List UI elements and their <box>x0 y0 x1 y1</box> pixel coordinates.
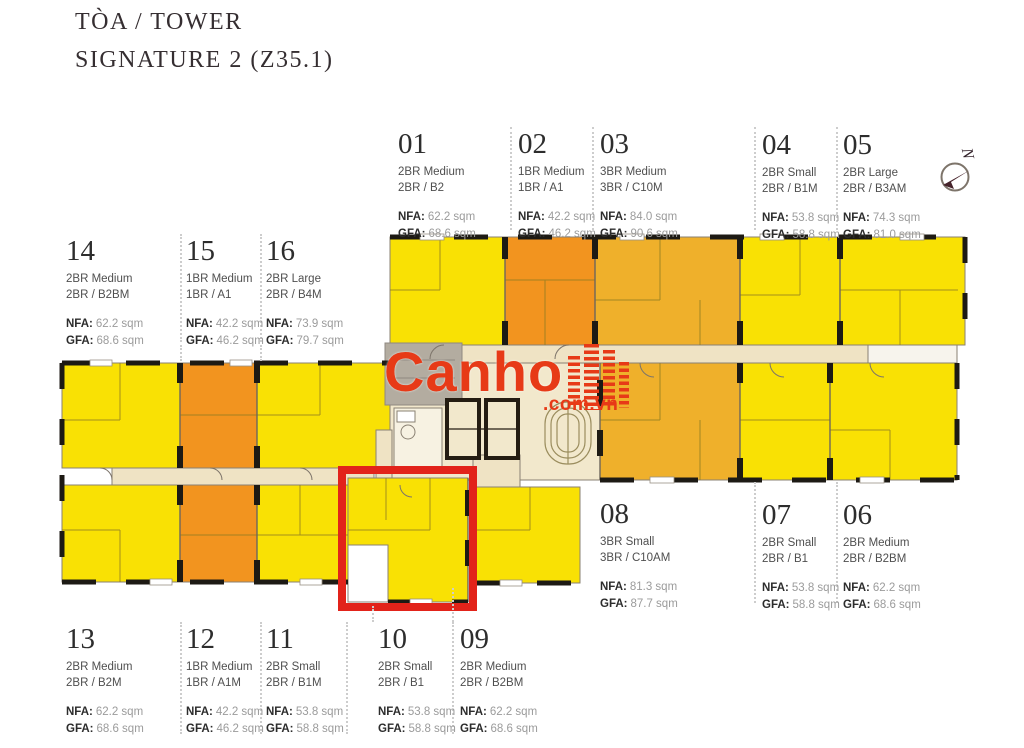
unit-type: 2BR Medium <box>66 271 178 287</box>
unit-shape-06 <box>830 363 957 480</box>
nfa-value: 53.8 sqm <box>792 212 839 224</box>
unit-label-08: 08 3BR Small 3BR / C10AM NFA:81.3 sqm GF… <box>600 500 712 614</box>
unit-number: 11 <box>266 625 378 654</box>
gfa-value: 79.7 sqm <box>296 335 343 347</box>
unit-type: 2BR Large <box>843 165 955 181</box>
unit-shape-07 <box>740 363 830 480</box>
unit-shape-12 <box>180 485 257 582</box>
gfa-label: GFA: <box>762 229 789 241</box>
gfa-label: GFA: <box>186 723 213 735</box>
label-leader <box>754 482 756 495</box>
unit-code: 2BR / B2BM <box>66 287 178 303</box>
nfa-label: NFA: <box>398 211 425 223</box>
gfa-value: 58.8 sqm <box>296 723 343 735</box>
unit-label-01: 01 2BR Medium 2BR / B2 NFA:62.2 sqm GFA:… <box>398 130 510 244</box>
unit-number: 13 <box>66 625 178 654</box>
gfa-value: 90.6 sqm <box>630 228 677 240</box>
nfa-value: 62.2 sqm <box>428 211 475 223</box>
unit-type: 2BR Medium <box>460 659 572 675</box>
canho-building-icon <box>603 350 615 408</box>
unit-type: 2BR Small <box>266 659 378 675</box>
nfa-label: NFA: <box>843 582 870 594</box>
nfa-value: 42.2 sqm <box>216 318 263 330</box>
nfa-value: 73.9 sqm <box>296 318 343 330</box>
nfa-value: 81.3 sqm <box>630 581 677 593</box>
unit-code: 2BR / B4M <box>266 287 378 303</box>
gfa-value: 68.6 sqm <box>490 723 537 735</box>
gfa-value: 87.7 sqm <box>630 598 677 610</box>
unit-label-14: 14 2BR Medium 2BR / B2BM NFA:62.2 sqm GF… <box>66 237 178 351</box>
gfa-label: GFA: <box>460 723 487 735</box>
unit-number: 09 <box>460 625 572 654</box>
unit-shape-05 <box>840 237 965 345</box>
unit-number: 06 <box>843 501 955 530</box>
nfa-label: NFA: <box>762 582 789 594</box>
unit-shape-01 <box>390 237 505 345</box>
unit-type: 2BR Medium <box>398 164 510 180</box>
gfa-value: 58.8 sqm <box>792 229 839 241</box>
label-leader <box>836 482 838 495</box>
gfa-label: GFA: <box>600 598 627 610</box>
nfa-label: NFA: <box>600 581 627 593</box>
unit-label-09: 09 2BR Medium 2BR / B2BM NFA:62.2 sqm GF… <box>460 625 572 739</box>
unit-label-05: 05 2BR Large 2BR / B3AM NFA:74.3 sqm GFA… <box>843 131 955 245</box>
nfa-value: 62.2 sqm <box>490 706 537 718</box>
unit-number: 08 <box>600 500 712 529</box>
gfa-value: 46.2 sqm <box>216 335 263 347</box>
unit-shape-13 <box>62 485 180 582</box>
gfa-value: 68.6 sqm <box>428 228 475 240</box>
unit-type: 2BR Medium <box>66 659 178 675</box>
nfa-value: 74.3 sqm <box>873 212 920 224</box>
unit-code: 3BR / C10AM <box>600 550 712 566</box>
unit-code: 2BR / B2 <box>398 180 510 196</box>
nfa-value: 42.2 sqm <box>216 706 263 718</box>
nfa-label: NFA: <box>266 318 293 330</box>
unit-code: 2BR / B3AM <box>843 181 955 197</box>
gfa-label: GFA: <box>378 723 405 735</box>
unit-label-11: 11 2BR Small 2BR / B1M NFA:53.8 sqm GFA:… <box>266 625 378 739</box>
gfa-label: GFA: <box>266 335 293 347</box>
gfa-value: 46.2 sqm <box>548 228 595 240</box>
unit-shape-02 <box>505 237 595 345</box>
unit-shape-11 <box>257 485 348 582</box>
gfa-label: GFA: <box>762 599 789 611</box>
canho-logo-text: Canho <box>384 344 563 400</box>
label-separator <box>754 497 756 603</box>
label-leader <box>452 588 454 622</box>
nfa-label: NFA: <box>266 706 293 718</box>
label-leader <box>180 345 182 361</box>
nfa-label: NFA: <box>378 706 405 718</box>
unit-shape-14 <box>62 363 180 468</box>
canho-building-icon <box>619 362 629 408</box>
label-separator <box>180 234 182 342</box>
label-separator <box>754 127 756 230</box>
corridor-end <box>868 345 957 363</box>
nfa-label: NFA: <box>186 318 213 330</box>
unit-type: 2BR Medium <box>843 535 955 551</box>
unit-10-notch <box>348 545 388 602</box>
unit-type: 3BR Small <box>600 534 712 550</box>
unit-number: 14 <box>66 237 178 266</box>
nfa-label: NFA: <box>600 211 627 223</box>
gfa-value: 46.2 sqm <box>216 723 263 735</box>
nfa-label: NFA: <box>762 212 789 224</box>
unit-number: 03 <box>600 130 712 159</box>
unit-label-13: 13 2BR Medium 2BR / B2M NFA:62.2 sqm GFA… <box>66 625 178 739</box>
unit-label-03: 03 3BR Medium 3BR / C10M NFA:84.0 sqm GF… <box>600 130 712 244</box>
floor-plan-page: TÒA / TOWER SIGNATURE 2 (Z35.1) <box>0 0 1024 748</box>
unit-code: 3BR / C10M <box>600 180 712 196</box>
nfa-label: NFA: <box>843 212 870 224</box>
unit-number: 16 <box>266 237 378 266</box>
nfa-label: NFA: <box>66 318 93 330</box>
nfa-value: 62.2 sqm <box>873 582 920 594</box>
gfa-value: 68.6 sqm <box>96 723 143 735</box>
unit-shape-04 <box>740 237 840 345</box>
canho-building-icon <box>568 356 580 408</box>
gfa-value: 68.6 sqm <box>96 335 143 347</box>
gfa-value: 81.0 sqm <box>873 229 920 241</box>
gfa-label: GFA: <box>518 228 545 240</box>
nfa-value: 53.8 sqm <box>296 706 343 718</box>
nfa-value: 84.0 sqm <box>630 211 677 223</box>
gfa-label: GFA: <box>843 599 870 611</box>
canho-building-icon <box>584 344 599 410</box>
gfa-label: GFA: <box>600 228 627 240</box>
nfa-value: 62.2 sqm <box>96 318 143 330</box>
corridor-connector <box>376 430 392 485</box>
unit-code: 2BR / B1M <box>266 675 378 691</box>
unit-type: 2BR Large <box>266 271 378 287</box>
unit-number: 01 <box>398 130 510 159</box>
unit-number: 05 <box>843 131 955 160</box>
nfa-value: 53.8 sqm <box>408 706 455 718</box>
nfa-label: NFA: <box>186 706 213 718</box>
corridor-left <box>112 468 374 485</box>
unit-code: 2BR / B2BM <box>843 551 955 567</box>
unit-type: 3BR Medium <box>600 164 712 180</box>
unit-shape-09 <box>473 487 580 583</box>
nfa-label: NFA: <box>66 706 93 718</box>
gfa-value: 58.8 sqm <box>408 723 455 735</box>
nfa-value: 62.2 sqm <box>96 706 143 718</box>
gfa-label: GFA: <box>66 723 93 735</box>
gfa-label: GFA: <box>66 335 93 347</box>
nfa-label: NFA: <box>460 706 487 718</box>
canho-watermark: Canho .com.vn <box>380 342 640 422</box>
gfa-label: GFA: <box>398 228 425 240</box>
gfa-value: 68.6 sqm <box>873 599 920 611</box>
gfa-label: GFA: <box>843 229 870 241</box>
unit-shape-03 <box>595 237 740 345</box>
gfa-label: GFA: <box>266 723 293 735</box>
label-leader <box>372 606 374 622</box>
gfa-value: 58.8 sqm <box>792 599 839 611</box>
nfa-value: 42.2 sqm <box>548 211 595 223</box>
label-separator <box>510 127 512 230</box>
nfa-label: NFA: <box>518 211 545 223</box>
unit-code: 2BR / B2M <box>66 675 178 691</box>
nfa-value: 53.8 sqm <box>792 582 839 594</box>
label-separator <box>180 622 182 734</box>
compass-north-letter: N <box>958 146 977 162</box>
unit-label-06: 06 2BR Medium 2BR / B2BM NFA:62.2 sqm GF… <box>843 501 955 615</box>
unit-code: 2BR / B2BM <box>460 675 572 691</box>
unit-label-16: 16 2BR Large 2BR / B4M NFA:73.9 sqm GFA:… <box>266 237 378 351</box>
gfa-label: GFA: <box>186 335 213 347</box>
